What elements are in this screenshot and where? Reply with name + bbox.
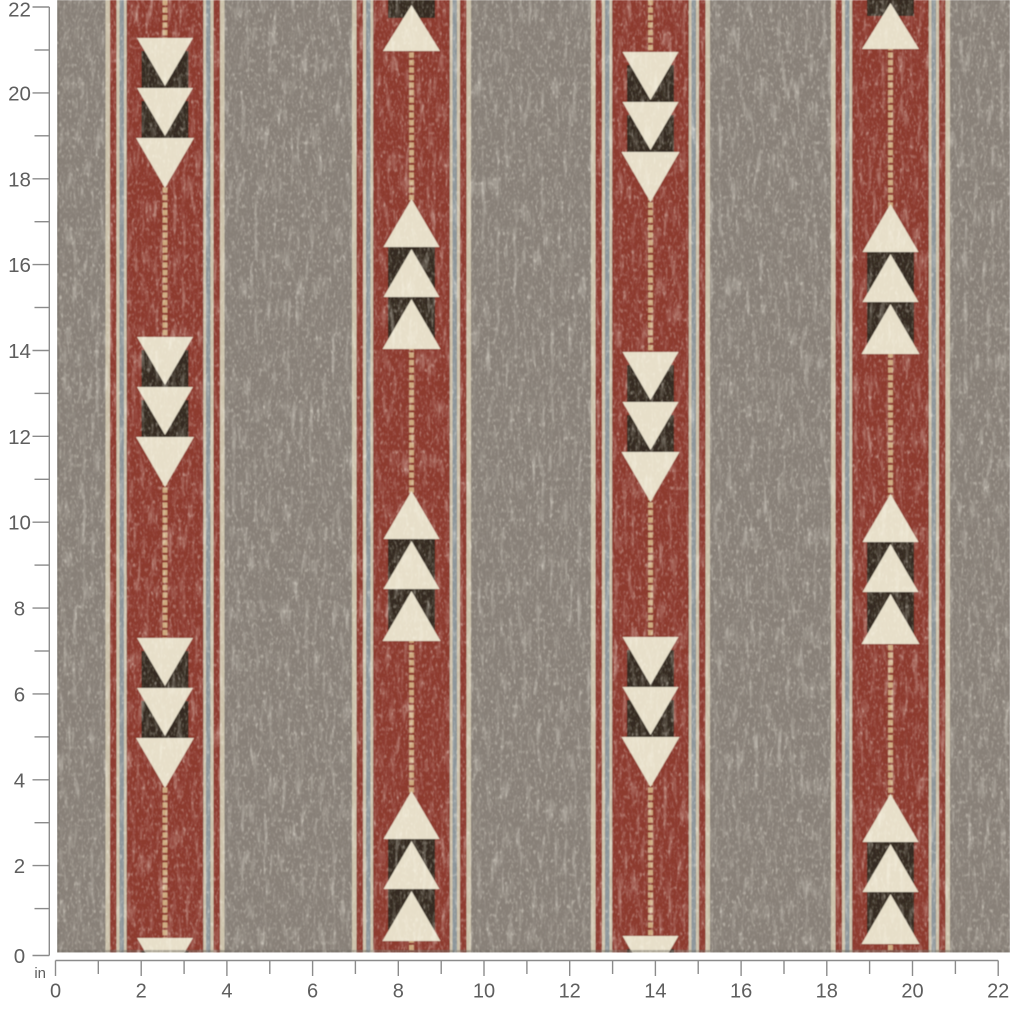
svg-text:0: 0 [50,981,61,1003]
svg-text:22: 22 [8,0,31,22]
svg-text:10: 10 [8,512,31,535]
svg-text:in: in [34,965,46,982]
svg-text:18: 18 [8,168,31,191]
svg-text:22: 22 [987,981,1009,1003]
svg-text:2: 2 [136,981,147,1003]
svg-text:20: 20 [901,981,923,1003]
svg-text:20: 20 [8,82,31,105]
svg-text:6: 6 [307,981,318,1003]
svg-text:2: 2 [14,855,25,878]
svg-text:8: 8 [14,598,25,621]
svg-text:14: 14 [8,340,31,363]
svg-text:16: 16 [730,981,752,1003]
svg-text:0: 0 [14,945,25,968]
svg-text:14: 14 [644,981,666,1003]
svg-text:8: 8 [393,981,404,1003]
svg-text:4: 4 [14,769,25,792]
svg-text:18: 18 [816,981,838,1003]
svg-text:4: 4 [221,981,232,1003]
svg-text:16: 16 [8,254,31,277]
svg-text:12: 12 [8,426,31,449]
svg-text:6: 6 [14,683,25,706]
svg-text:12: 12 [559,981,581,1003]
svg-text:10: 10 [473,981,495,1003]
